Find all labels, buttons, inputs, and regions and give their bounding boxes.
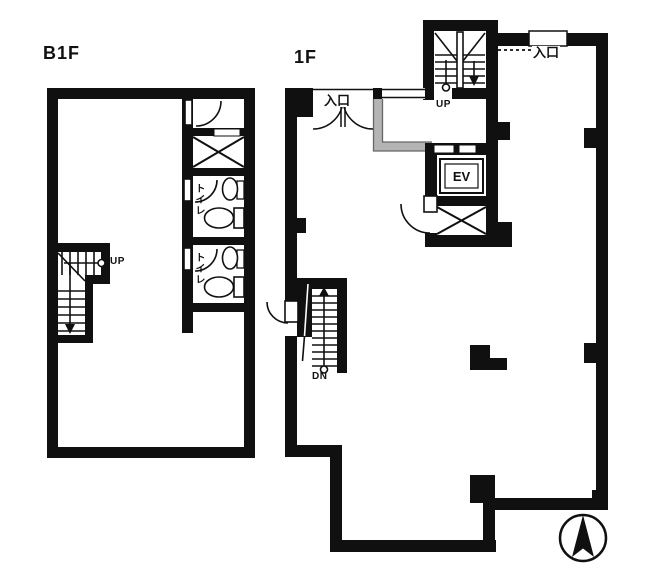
b1f-toilet-1-label: トイレ [193,183,203,216]
compass-north-arrow-icon [560,515,606,561]
f1-stair-down-label: DN [312,372,327,382]
main-entrance-label: 入口 [532,46,560,59]
floor-plan-drawing [0,0,646,586]
f1-stairwell [435,32,485,91]
wall-openings [214,31,567,336]
b1f-stair-up-label: UP [110,257,125,267]
b1f-shaft-x-box [193,137,244,167]
f1-floor-label: 1F [294,48,317,66]
entry-steps [374,99,433,151]
f1-west-door [267,301,298,323]
b1f-floor-label: B1F [43,44,80,62]
b1f-toilet-2-label: トイレ [193,252,203,285]
b1f-stairs [58,252,105,334]
elevator-label: EV [440,160,483,192]
side-entrance-label: 入口 [323,94,351,107]
floor-plan-canvas: B1F 1F UP UP DN 入口 入口 EV トイレ トイレ [0,0,646,586]
f1-stair-up-label: UP [436,100,451,110]
b1f-closet-door [185,100,221,126]
